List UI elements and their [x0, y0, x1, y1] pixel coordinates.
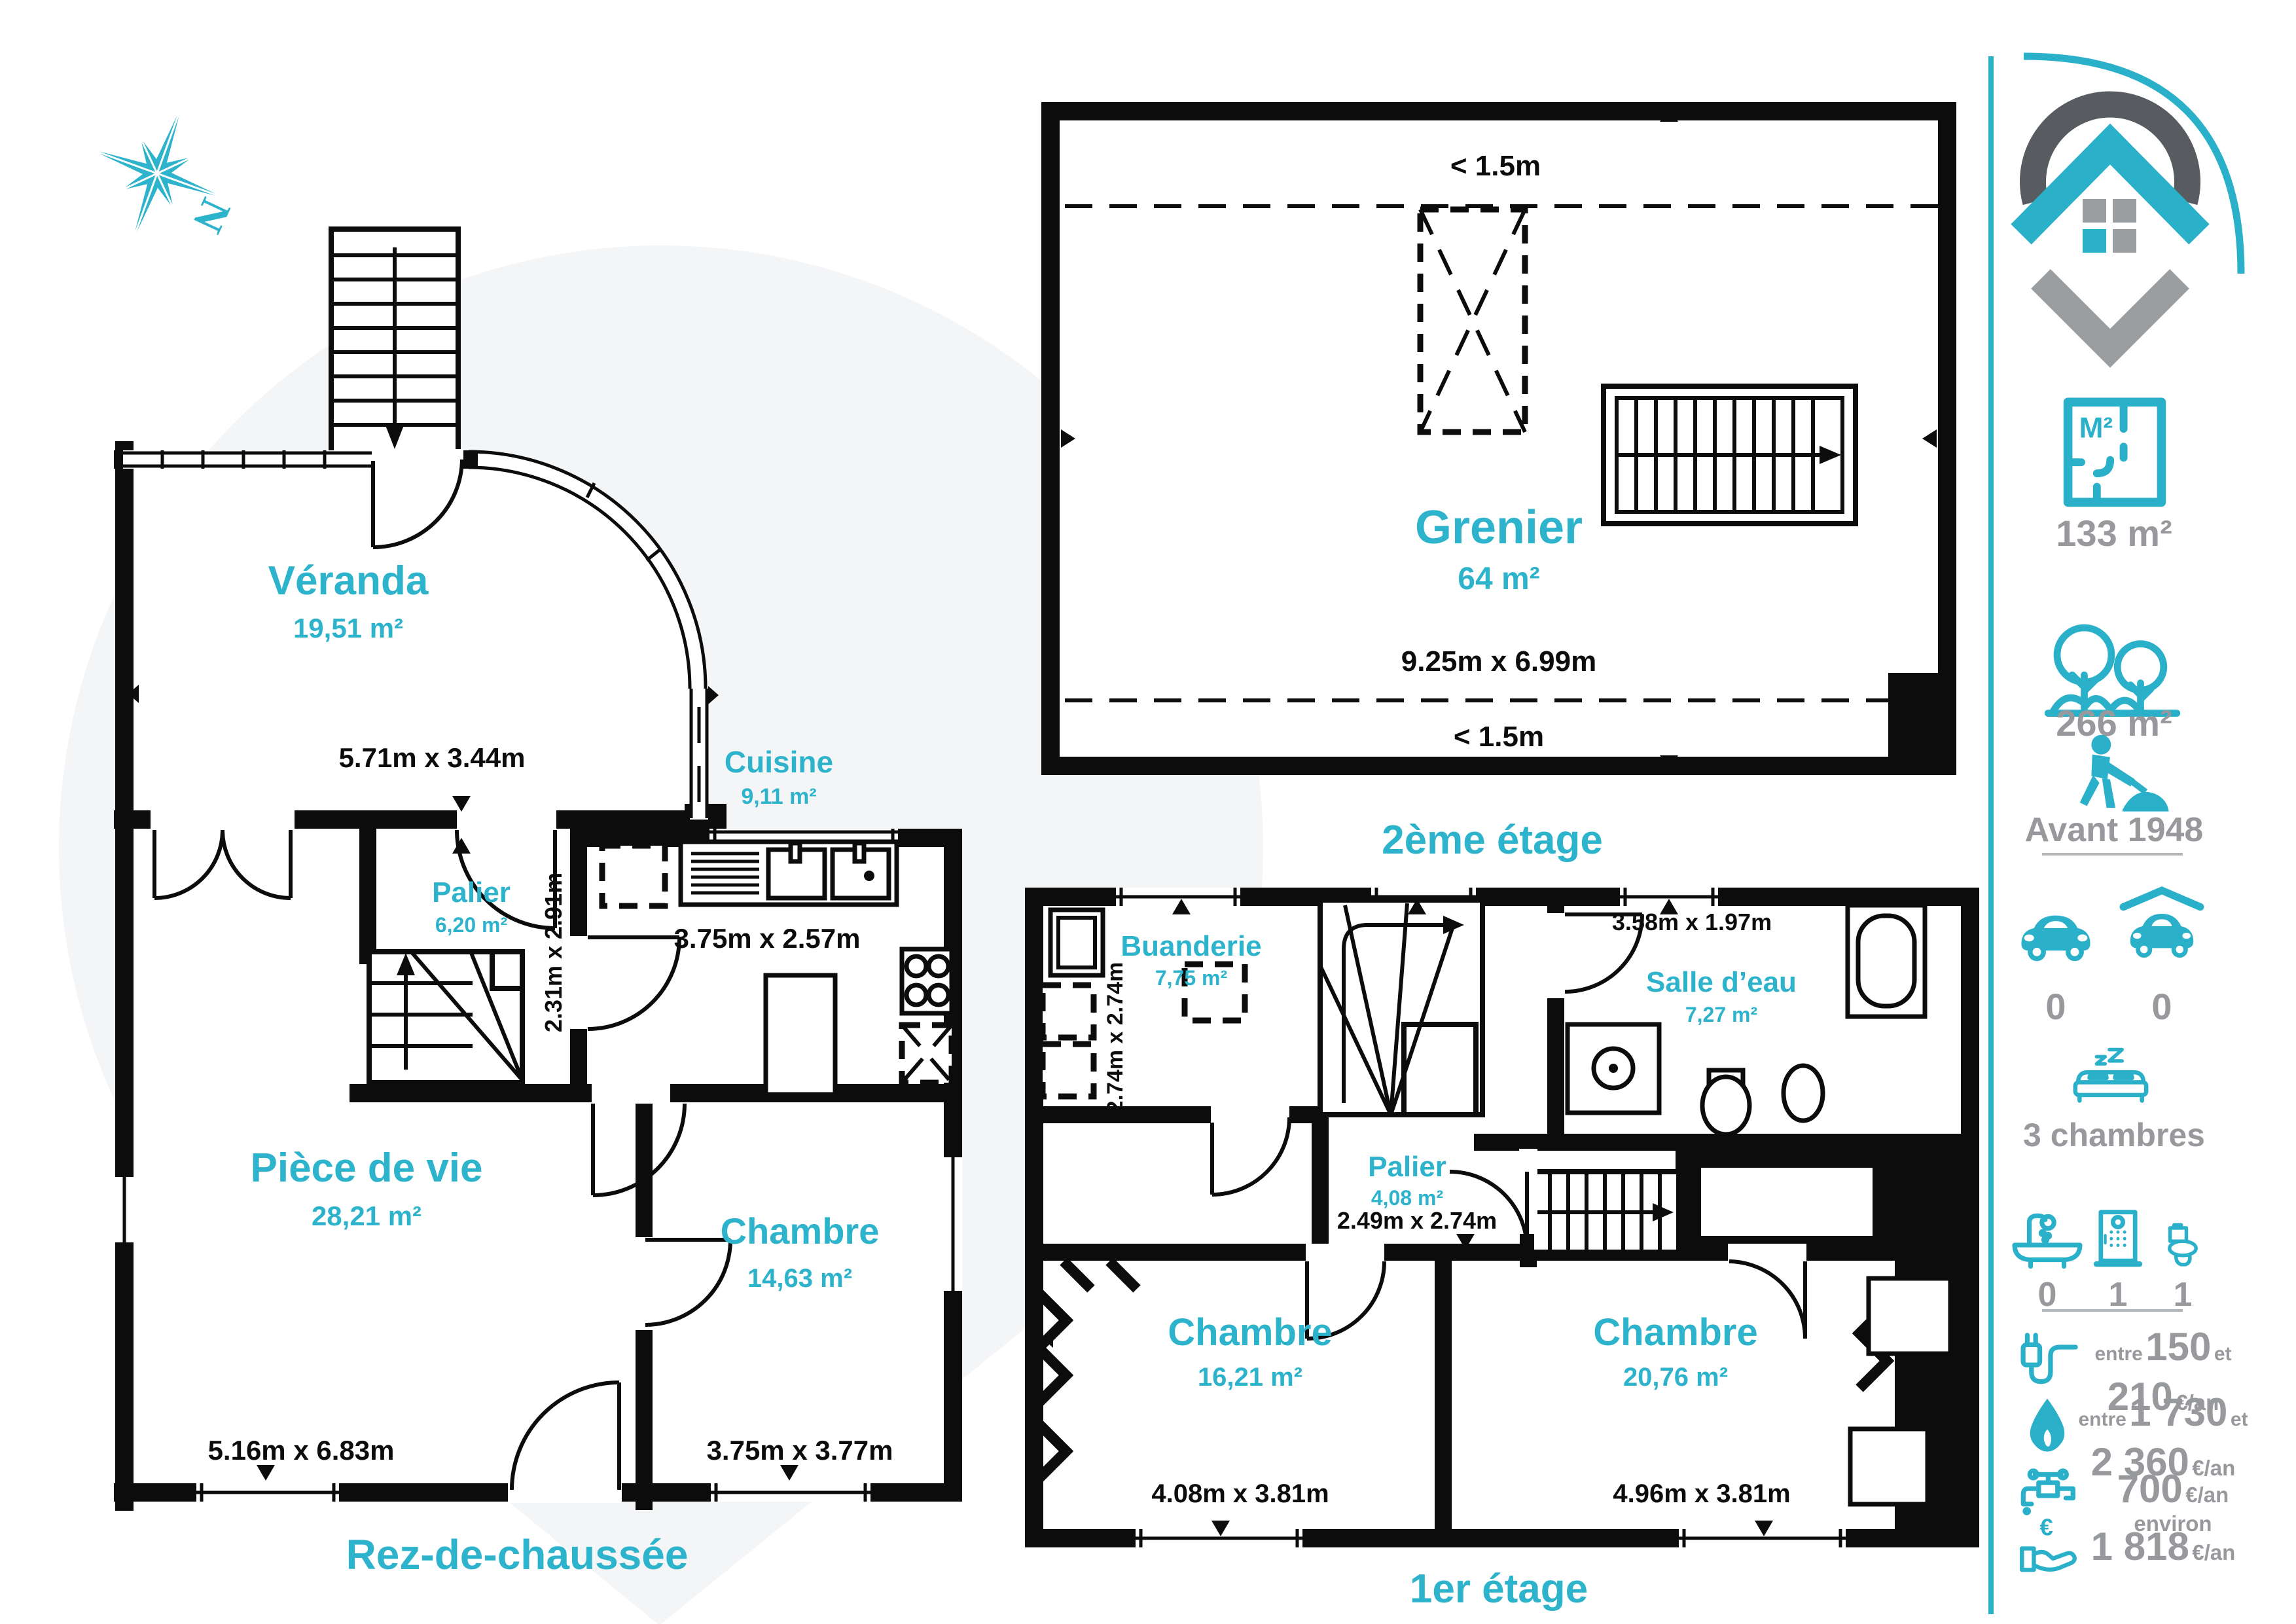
piece-de-vie-left-window [115, 1177, 134, 1242]
electricity-icon [2017, 1330, 2083, 1390]
sidebar-separator [1988, 56, 1994, 1614]
plan-etage1: Buanderie 7,75 m² 2.74m x 2.74m Palier 4… [1024, 887, 1980, 1548]
chambre-rdc-bottom-window [711, 1483, 870, 1502]
room-name-buanderie: Buanderie [1121, 930, 1261, 962]
logo-pin-v [2041, 279, 2179, 348]
room-dims-chambre1: 4.08m x 3.81m [1151, 1479, 1329, 1508]
rdc-exterior-stairs [331, 229, 458, 457]
floor-label-etage2: 2ème étage [1230, 817, 1754, 863]
chambre2-closet-1 [1869, 1278, 1950, 1354]
room-area-cuisine: 9,11 m² [741, 784, 816, 809]
agency-logo [2015, 63, 2206, 370]
sidebar-divider-2 [2042, 1309, 2183, 1312]
floorplan-page: N [0, 0, 2296, 1624]
floor-label-etage1: 1er étage [1237, 1566, 1761, 1612]
room-name-salle-deau: Salle d’eau [1646, 966, 1797, 998]
plan-etage2: < 1.5m Grenier 64 m² 9.25m x 6.99m < 1.5… [1037, 98, 1967, 792]
electricity-word1: entre [2094, 1343, 2142, 1365]
electricity-value1: 150 [2145, 1325, 2211, 1369]
water-icon [2017, 1465, 2083, 1515]
tax-value: 1 818 [2091, 1525, 2189, 1568]
cuisine-table [766, 975, 835, 1094]
toilet-icon [2160, 1216, 2206, 1278]
room-dims-salle-deau: 3.58m x 1.97m [1612, 909, 1772, 935]
grenier-height-note-top: < 1.5m [1450, 150, 1541, 182]
room-dims-grenier: 9.25m x 6.99m [1401, 645, 1596, 677]
cuisine-stove [902, 949, 952, 1013]
water-value: 700 [2117, 1467, 2183, 1511]
veranda-right-window [690, 689, 708, 820]
svg-text:€: € [2040, 1514, 2053, 1541]
piece-de-vie-bottom-window [196, 1483, 339, 1502]
construction-period-icon [2054, 733, 2172, 815]
tax-unit: €/an [2192, 1540, 2235, 1564]
room-dims-chambre-rdc: 3.75m x 3.77m [707, 1435, 893, 1466]
gas-icon [2024, 1396, 2071, 1456]
construction-period-value: Avant 1948 [2013, 810, 2215, 850]
room-area-grenier: 64 m² [1458, 562, 1539, 596]
room-dims-buanderie: 2.74m x 2.74m [1103, 962, 1128, 1113]
svg-text:M²: M² [2079, 412, 2113, 444]
room-name-palier1: Palier [1368, 1151, 1446, 1183]
room-name-grenier: Grenier [1415, 501, 1583, 554]
room-name-veranda: Véranda [268, 558, 429, 604]
room-dims-piece-de-vie: 5.16m x 6.83m [208, 1435, 395, 1466]
etage1-closet [1698, 1165, 1875, 1238]
gas-word1: entre [2078, 1409, 2126, 1430]
room-area-palier1: 4,08 m² [1371, 1186, 1443, 1210]
cuisine-appliance-dashed [602, 846, 665, 906]
room-name-palier-rdc: Palier [432, 876, 511, 909]
room-area-chambre2: 20,76 m² [1623, 1363, 1728, 1392]
room-area-buanderie: 7,75 m² [1155, 966, 1227, 990]
room-name-piece-de-vie: Pièce de vie [250, 1146, 482, 1191]
room-dims-palier1: 2.49m x 2.74m [1337, 1207, 1497, 1234]
showers-value: 1 [2093, 1275, 2143, 1314]
room-name-chambre-rdc: Chambre [721, 1210, 880, 1252]
parking-value: 0 [2017, 985, 2094, 1028]
toilets-value: 1 [2160, 1275, 2206, 1314]
garage-icon [2119, 876, 2204, 981]
room-dims-veranda: 5.71m x 3.44m [339, 742, 526, 773]
bathtub-icon [2011, 1208, 2084, 1274]
room-area-chambre1: 16,21 m² [1198, 1363, 1302, 1392]
grenier-height-note-bottom: < 1.5m [1454, 721, 1544, 753]
room-name-chambre1: Chambre [1168, 1311, 1332, 1354]
chambre2-closet-2 [1850, 1429, 1928, 1504]
living-area-value: 133 m² [2013, 512, 2215, 554]
room-area-salle-deau: 7,27 m² [1685, 1003, 1757, 1026]
room-area-chambre-rdc: 14,63 m² [747, 1264, 852, 1293]
room-name-chambre2: Chambre [1593, 1311, 1757, 1354]
floor-label-rdc: Rez-de-chaussée [255, 1530, 779, 1579]
logo-window [2083, 199, 2136, 253]
floor-area-icon: M² [2059, 393, 2170, 511]
grenier-wall-notch [1888, 673, 1948, 767]
gas-value1: 1 730 [2129, 1390, 2227, 1434]
room-area-piece-de-vie: 28,21 m² [312, 1200, 422, 1231]
rdc-winder-stairs [369, 952, 522, 1083]
room-name-cuisine: Cuisine [725, 745, 833, 779]
cuisine-dashed-x-appliance [902, 1025, 952, 1083]
room-dims-chambre2: 4.96m x 3.81m [1613, 1479, 1790, 1508]
etage1-straight-stairs [1532, 1172, 1679, 1252]
room-dims-cuisine: 3.75m x 2.57m [674, 923, 861, 954]
tax-icon: € [2017, 1517, 2083, 1574]
grenier-stairs [1604, 386, 1856, 524]
cuisine-sink-counter [681, 842, 897, 905]
plan-rdc: Véranda 19,51 m² 5.71m x 3.44m Palier 6,… [105, 190, 969, 1578]
garage-value: 0 [2119, 985, 2204, 1028]
chambre-rdc-right-window [944, 1157, 962, 1291]
room-dims-palier-rdc: 2.31m x 2.91m [540, 873, 567, 1032]
room-area-palier-rdc: 6,20 m² [435, 913, 507, 937]
tax-cost: 1 818 €/an [2078, 1524, 2248, 1569]
gas-word2: et [2231, 1409, 2248, 1430]
sidebar-divider-1 [2042, 853, 2183, 856]
etage1-winder-stairs [1320, 900, 1482, 1115]
shower-icon [2093, 1201, 2143, 1278]
bedrooms-value: 3 chambres [2009, 1116, 2219, 1154]
bedrooms-icon [2068, 1038, 2153, 1113]
bathtubs-value: 0 [2011, 1275, 2084, 1314]
room-area-veranda: 19,51 m² [293, 613, 403, 643]
parking-icon [2017, 898, 2094, 980]
grenier-dashed-hatch [1420, 209, 1525, 432]
electricity-word2: et [2214, 1343, 2232, 1365]
veranda-top-window-band [123, 450, 372, 469]
